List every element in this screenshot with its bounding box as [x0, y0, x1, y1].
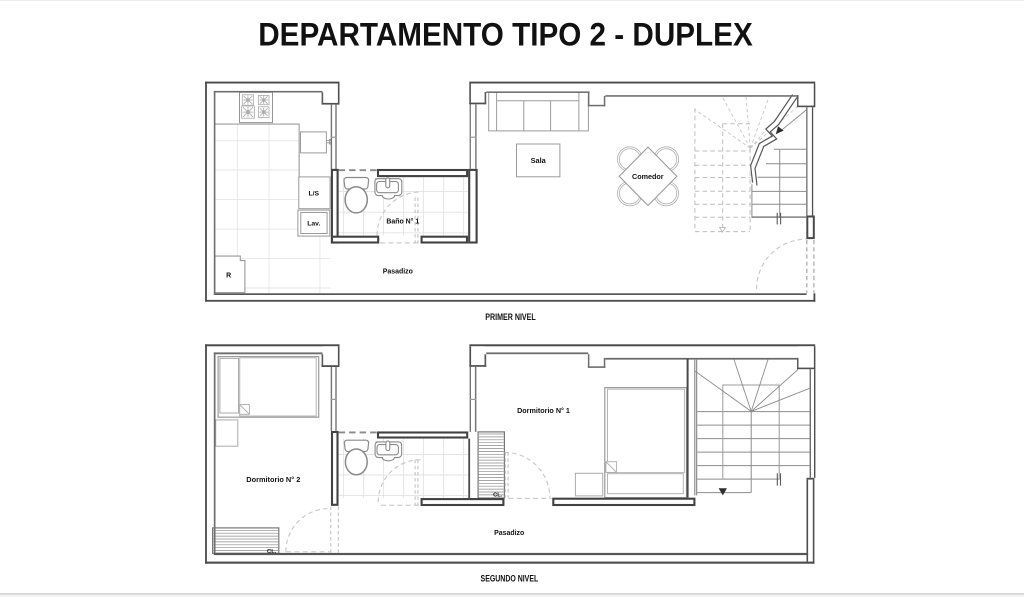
svg-text:Lav.: Lav. — [307, 221, 320, 228]
svg-text:L/S: L/S — [309, 190, 320, 197]
svg-text:CL.: CL. — [493, 493, 503, 499]
svg-text:R: R — [226, 273, 231, 280]
svg-text:Sala: Sala — [531, 156, 547, 165]
svg-text:Pasadizo: Pasadizo — [494, 528, 525, 537]
svg-text:PRIMER NIVEL: PRIMER NIVEL — [485, 312, 536, 322]
svg-text:Comedor: Comedor — [632, 172, 664, 181]
svg-text:Pasadizo: Pasadizo — [383, 267, 414, 276]
svg-text:SEGUNDO NIVEL: SEGUNDO NIVEL — [481, 574, 539, 585]
svg-text:Dormitorio N° 2: Dormitorio N° 2 — [246, 475, 300, 484]
svg-text:Dormitorio N° 1: Dormitorio N° 1 — [517, 406, 570, 415]
svg-text:Baño N° 1: Baño N° 1 — [386, 217, 419, 226]
svg-text:DEPARTAMENTO TIPO 2 - DUPLEX: DEPARTAMENTO TIPO 2 - DUPLEX — [258, 16, 753, 52]
